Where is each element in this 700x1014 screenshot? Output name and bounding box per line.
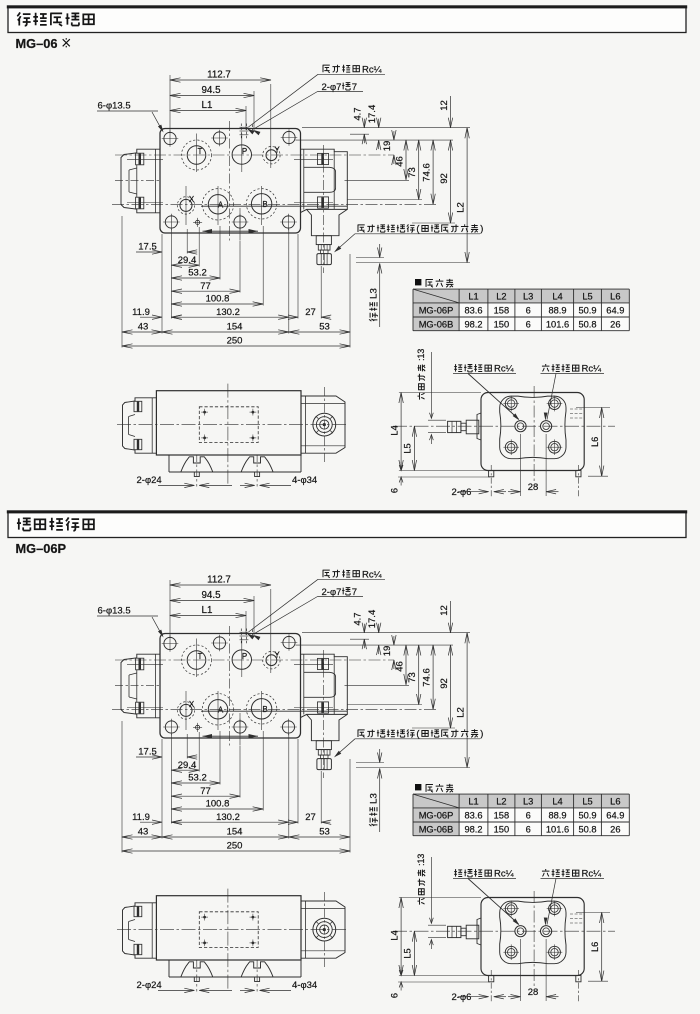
svg-text:X: X (189, 700, 195, 709)
svg-text:158: 158 (494, 810, 510, 820)
svg-text:77: 77 (200, 786, 211, 797)
svg-text:83.6: 83.6 (464, 810, 482, 820)
svg-text:53: 53 (319, 322, 330, 333)
svg-text:28: 28 (528, 482, 539, 493)
svg-text:98.2: 98.2 (464, 319, 482, 329)
svg-text:17.5: 17.5 (138, 242, 157, 253)
svg-text:50.9: 50.9 (578, 305, 596, 315)
svg-text:6: 6 (526, 319, 531, 329)
svg-text:92: 92 (439, 678, 450, 689)
svg-text:L5: L5 (582, 291, 592, 301)
svg-text:28: 28 (528, 987, 539, 998)
svg-text:L1: L1 (468, 291, 478, 301)
svg-text:19: 19 (382, 141, 393, 152)
svg-text:L2: L2 (455, 707, 466, 718)
svg-text:77: 77 (200, 281, 211, 292)
svg-text:L2: L2 (496, 291, 506, 301)
svg-text:L4: L4 (389, 425, 399, 435)
svg-text:MG–06P: MG–06P (16, 541, 67, 556)
svg-text:73: 73 (407, 672, 418, 683)
svg-text:26: 26 (610, 319, 620, 329)
svg-text:6: 6 (526, 810, 531, 820)
svg-text:T: T (198, 652, 203, 661)
svg-text:29.4: 29.4 (178, 255, 197, 266)
svg-text:2-φ6: 2-φ6 (452, 487, 472, 498)
svg-text:2-φ6: 2-φ6 (452, 992, 472, 1003)
svg-text:6-φ13.5: 6-φ13.5 (98, 101, 131, 112)
svg-text:100.8: 100.8 (206, 294, 230, 305)
svg-text:Rc¼: Rc¼ (494, 869, 515, 880)
svg-text:Y: Y (274, 651, 280, 660)
svg-text:6: 6 (389, 488, 399, 493)
svg-text:4-φ34: 4-φ34 (292, 980, 317, 991)
svg-text:6: 6 (526, 305, 531, 315)
svg-text:74.6: 74.6 (421, 163, 432, 182)
svg-text:12: 12 (439, 605, 450, 616)
svg-text:L4: L4 (552, 796, 562, 806)
svg-text:4.7: 4.7 (353, 107, 364, 120)
svg-text:101.6: 101.6 (546, 824, 569, 834)
svg-text:250: 250 (227, 336, 243, 347)
svg-text:150: 150 (494, 319, 510, 329)
svg-text:L5: L5 (403, 443, 413, 453)
svg-text:11.9: 11.9 (132, 307, 150, 318)
svg-text:4.7: 4.7 (353, 612, 364, 625)
svg-text:158: 158 (494, 305, 510, 315)
svg-text:64.9: 64.9 (606, 810, 624, 820)
svg-text:): ) (480, 224, 483, 234)
svg-text::13: :13 (416, 349, 426, 361)
svg-text:98.2: 98.2 (464, 824, 482, 834)
svg-text:29.4: 29.4 (178, 760, 197, 771)
svg-text:X: X (189, 195, 195, 204)
svg-text:6: 6 (389, 993, 399, 998)
svg-text:L4: L4 (552, 291, 562, 301)
svg-text:2-φ24: 2-φ24 (137, 980, 162, 991)
svg-text:T: T (198, 147, 203, 156)
svg-text:6: 6 (526, 824, 531, 834)
svg-text:Rc¼: Rc¼ (362, 64, 383, 75)
svg-text:MG-06P: MG-06P (419, 305, 454, 315)
svg-text:P: P (242, 147, 247, 156)
svg-text:17.4: 17.4 (367, 610, 378, 629)
svg-text:50.9: 50.9 (578, 810, 596, 820)
svg-text:88.9: 88.9 (548, 305, 566, 315)
svg-text:17.4: 17.4 (367, 105, 378, 124)
svg-text:L5: L5 (403, 948, 413, 958)
svg-text:2-φ24: 2-φ24 (137, 475, 162, 486)
svg-text:4-φ34: 4-φ34 (292, 475, 317, 486)
svg-text:Rc¼: Rc¼ (582, 869, 603, 880)
svg-text:94.5: 94.5 (201, 85, 221, 96)
svg-text:74.6: 74.6 (421, 668, 432, 687)
svg-text:100.8: 100.8 (206, 799, 230, 810)
svg-text:2-φ7: 2-φ7 (322, 587, 342, 598)
svg-text:(: ( (416, 224, 420, 234)
svg-text:L1: L1 (468, 796, 478, 806)
svg-text:53.2: 53.2 (188, 268, 207, 279)
svg-text:MG-06B: MG-06B (419, 824, 454, 834)
svg-text:101.6: 101.6 (546, 319, 569, 329)
svg-text:83.6: 83.6 (464, 305, 482, 315)
svg-text:L1: L1 (202, 100, 213, 111)
svg-text:(: ( (416, 729, 420, 739)
svg-text:150: 150 (494, 824, 510, 834)
svg-text:MG-06B: MG-06B (419, 319, 454, 329)
svg-text:250: 250 (227, 841, 243, 852)
svg-text:L6: L6 (610, 291, 620, 301)
svg-text:88.9: 88.9 (548, 810, 566, 820)
svg-text:154: 154 (227, 827, 243, 838)
svg-text:): ) (480, 729, 483, 739)
svg-text:L6: L6 (590, 942, 600, 952)
svg-text:46: 46 (394, 156, 405, 167)
svg-text:130.2: 130.2 (216, 812, 240, 823)
svg-text:12: 12 (439, 100, 450, 111)
svg-text:L2: L2 (455, 202, 466, 213)
svg-text:53.2: 53.2 (188, 773, 207, 784)
svg-text:43: 43 (138, 827, 149, 838)
svg-text:Rc¼: Rc¼ (362, 569, 383, 580)
svg-text:50.8: 50.8 (578, 824, 596, 834)
svg-text:27: 27 (305, 307, 316, 318)
svg-text:6-φ13.5: 6-φ13.5 (98, 606, 131, 617)
svg-text:17.5: 17.5 (138, 747, 157, 758)
svg-text:L6: L6 (590, 437, 600, 447)
svg-text:73: 73 (407, 167, 418, 178)
svg-text:A: A (218, 201, 224, 210)
svg-text:112.7: 112.7 (207, 575, 231, 586)
svg-text:L3: L3 (523, 796, 533, 806)
svg-text:53: 53 (319, 827, 330, 838)
svg-text:94.5: 94.5 (201, 590, 221, 601)
svg-text:92: 92 (439, 173, 450, 184)
svg-text:11.9: 11.9 (132, 812, 150, 823)
svg-text:L5: L5 (582, 796, 592, 806)
svg-text:112.7: 112.7 (207, 70, 231, 81)
svg-text:A: A (218, 706, 224, 715)
svg-text:Rc¼: Rc¼ (582, 364, 603, 375)
svg-text:L3: L3 (369, 288, 380, 299)
svg-text:P: P (242, 652, 247, 661)
svg-text:50.8: 50.8 (578, 319, 596, 329)
svg-text:MG–06: MG–06 (16, 36, 58, 51)
svg-text:43: 43 (138, 322, 149, 333)
svg-text:27: 27 (305, 812, 316, 823)
svg-text::13: :13 (416, 854, 426, 866)
svg-text:19: 19 (382, 646, 393, 657)
svg-text:MG-06P: MG-06P (419, 810, 454, 820)
svg-text:L6: L6 (610, 796, 620, 806)
svg-text:130.2: 130.2 (216, 307, 240, 318)
svg-text:26: 26 (610, 824, 620, 834)
svg-text:154: 154 (227, 322, 243, 333)
svg-text:L2: L2 (496, 796, 506, 806)
svg-text:64.9: 64.9 (606, 305, 624, 315)
svg-text:L3: L3 (369, 793, 380, 804)
svg-text:L4: L4 (389, 930, 399, 940)
svg-text:46: 46 (394, 661, 405, 672)
svg-text:L1: L1 (202, 605, 213, 616)
svg-text:L3: L3 (523, 291, 533, 301)
svg-text:7: 7 (352, 587, 357, 598)
svg-text:Y: Y (274, 146, 280, 155)
svg-text:Rc¼: Rc¼ (494, 364, 515, 375)
